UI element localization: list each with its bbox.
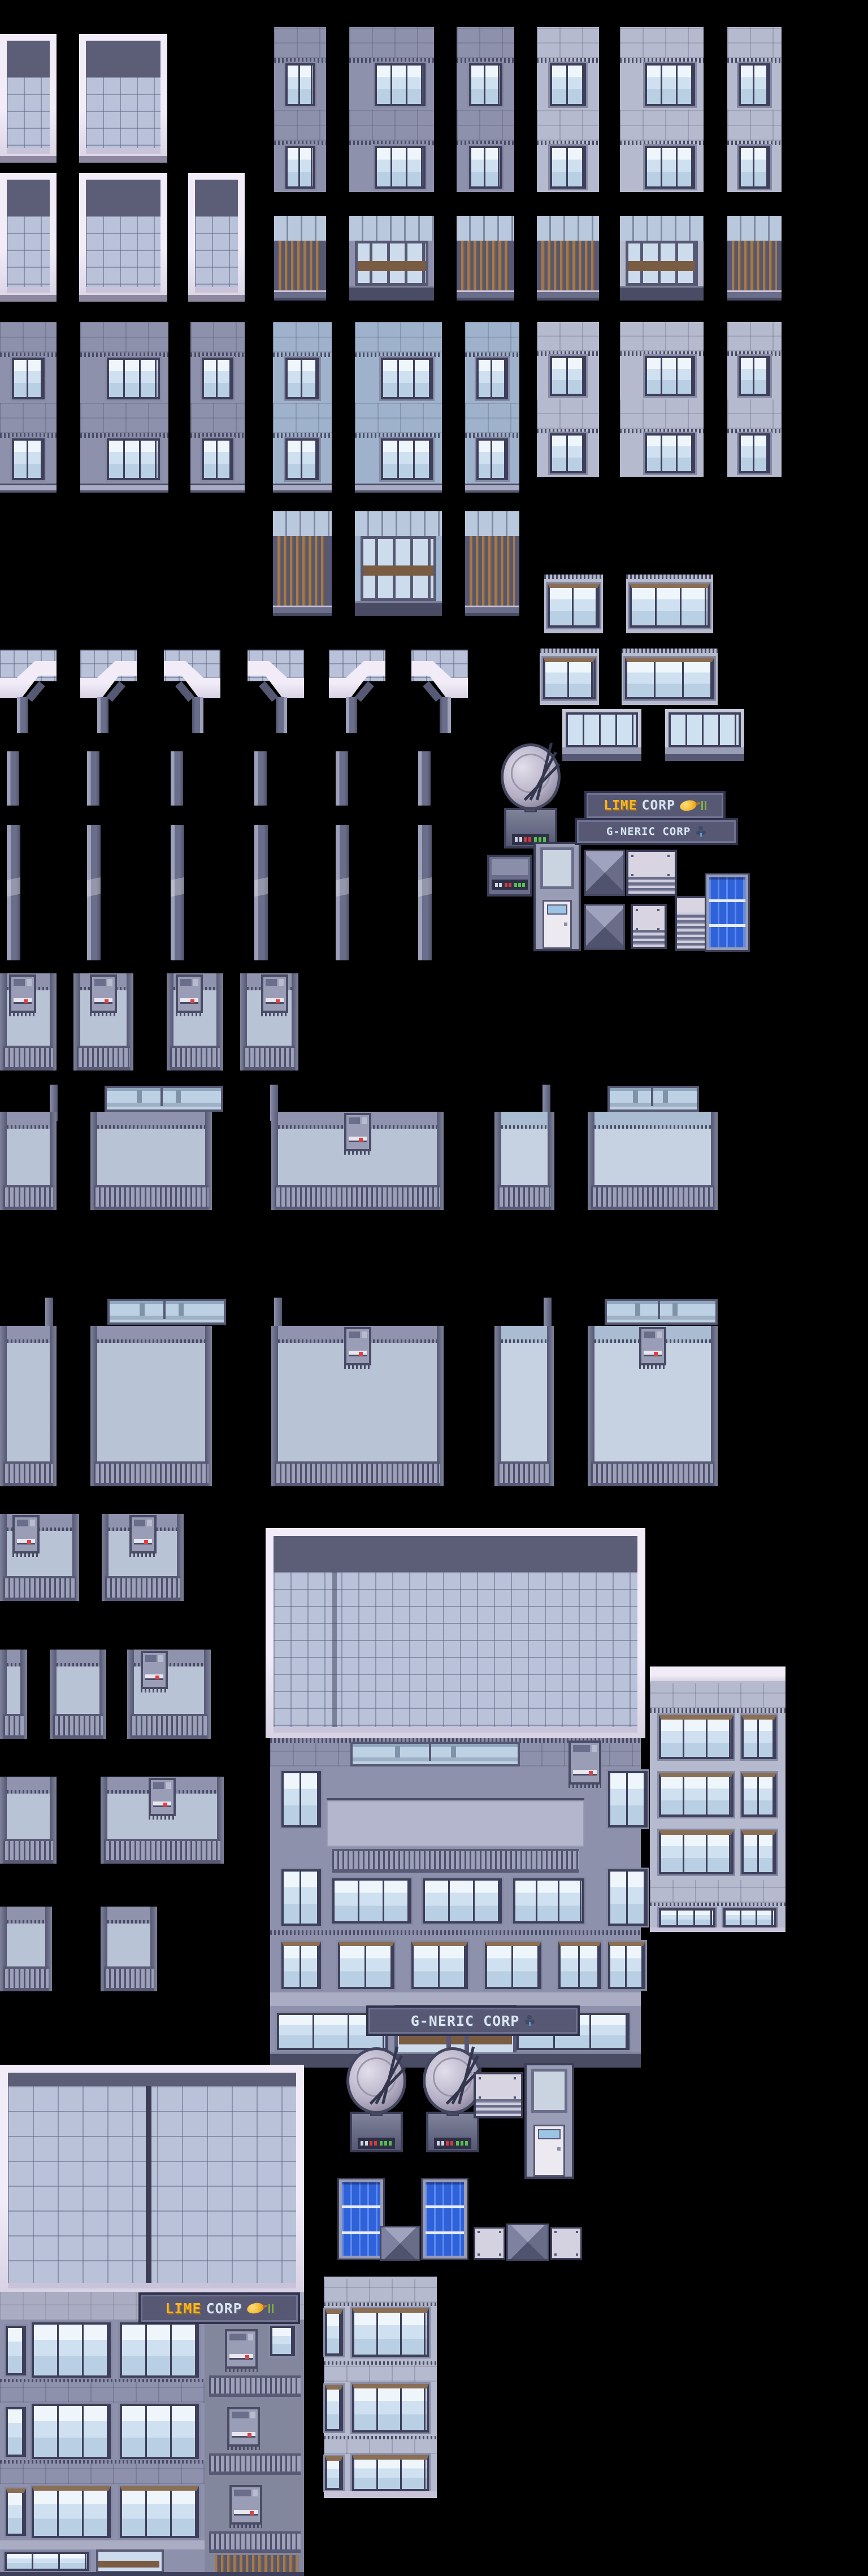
- sign-corp-word: CORP: [642, 798, 675, 813]
- pillar-tile: [336, 751, 348, 806]
- pillar-tile: [7, 825, 20, 960]
- facade-tower-tile: [0, 322, 57, 493]
- sprout-icon: [701, 801, 706, 810]
- satellite-dish: [342, 2045, 411, 2156]
- control-panel: [487, 855, 532, 897]
- glass-roof-tile: [188, 173, 245, 302]
- vent-box: [631, 904, 667, 949]
- roof-vent-pyramid: [380, 2226, 420, 2261]
- facade-tower-tile: [620, 322, 704, 477]
- rooftop-tile: [0, 1514, 79, 1605]
- skybridge-tile: [607, 1086, 699, 1112]
- lime-corp-sign: LIME CORP: [584, 791, 726, 820]
- rooftop-tile: [90, 1112, 212, 1215]
- facade-tower-tile: [457, 27, 514, 192]
- solar-panel: [423, 2179, 467, 2259]
- lemon-icon: [679, 799, 697, 812]
- generic-corp-building-sign: G-NERIC CORP: [366, 2005, 580, 2036]
- glass-roof-tile: [79, 34, 167, 163]
- window-tile: [622, 649, 718, 705]
- sign-generic-word: G-NERIC CORP: [606, 825, 691, 838]
- pillar-tile: [87, 751, 99, 806]
- pillar-tile: [7, 751, 19, 806]
- roof-corner-tile: [248, 650, 304, 733]
- louver-ground-tile: [457, 216, 514, 301]
- pillar-tile: [418, 751, 431, 806]
- trefoil-emblem-icon: [695, 826, 706, 837]
- trefoil-emblem-icon: [524, 2015, 535, 2026]
- window-tile: [540, 649, 599, 705]
- facade-tower-tile: [274, 27, 326, 192]
- skybridge-tile: [105, 1086, 223, 1112]
- rooftop-tile: [101, 1777, 224, 1868]
- roof-corner-tile: [80, 650, 137, 733]
- pillar-tile: [254, 825, 268, 960]
- facade-tower-tile: [727, 322, 782, 477]
- louver-stack: [675, 896, 708, 951]
- sign-lime-word: LIME: [165, 2300, 201, 2317]
- rooftop-tile: [0, 973, 57, 1075]
- louver-ground-tile: [465, 511, 519, 616]
- office-building: [266, 1528, 645, 2068]
- rooftop-tile: [127, 1650, 211, 1743]
- facade-tower-tile: [465, 322, 519, 493]
- rooftop-tile: [271, 1326, 444, 1491]
- roof-corner-tile: [164, 650, 220, 733]
- rooftop-tile: [0, 1650, 27, 1743]
- generic-corp-sign: G-NERIC CORP: [575, 818, 738, 845]
- facade-tower-tile: [273, 322, 332, 493]
- roof-vent-pyramid: [584, 850, 625, 896]
- facade-tower-tile: [537, 27, 599, 192]
- facade-tower-tile: [349, 27, 434, 192]
- apartment-building: [324, 2277, 437, 2498]
- rooftop-tile: [0, 1326, 57, 1491]
- roof-corner-tile: [0, 650, 57, 733]
- rooftop-tile: [271, 1112, 444, 1215]
- pillar-tile: [171, 751, 183, 806]
- satellite-dish: [496, 741, 565, 852]
- louver-ground-tile: [273, 511, 332, 616]
- elevator-unit: [524, 2063, 574, 2179]
- utility-box: [550, 2227, 582, 2260]
- louver-ground-tile: [274, 216, 326, 301]
- storefront-tile: [665, 709, 744, 761]
- louver-ground-tile: [727, 216, 782, 301]
- sign-lime-word: LIME: [604, 798, 637, 813]
- rooftop-tile: [90, 1326, 212, 1491]
- tileset-sheet: LIME CORP G-NERIC CORP G-NERIC CORP LIME…: [0, 0, 868, 2576]
- vent-box: [474, 2072, 523, 2118]
- rooftop-tile: [240, 973, 298, 1075]
- rooftop-tile: [588, 1112, 718, 1215]
- solar-panel: [339, 2179, 383, 2259]
- vent-box: [626, 850, 677, 896]
- rooftop-tile: [50, 1650, 106, 1743]
- pillar-tile: [254, 751, 267, 806]
- entrance-ground-tile: [620, 216, 704, 301]
- glass-roof-tile: [0, 173, 57, 302]
- side-building: [650, 1666, 785, 1932]
- sprout-icon: [268, 2304, 274, 2313]
- pillar-tile: [87, 825, 101, 960]
- skybridge-tile: [107, 1299, 226, 1325]
- lemon-icon: [246, 2301, 264, 2315]
- entrance-ground-tile: [355, 511, 442, 616]
- rooftop-tile: [0, 1112, 57, 1215]
- facade-tower-tile: [80, 322, 168, 493]
- rooftop-tile: [73, 973, 133, 1075]
- rooftop-tile: [0, 1907, 52, 1996]
- rooftop-tile: [167, 973, 223, 1075]
- utility-box: [474, 2227, 505, 2260]
- rooftop-tile: [102, 1514, 184, 1605]
- rooftop-tile: [0, 1777, 57, 1868]
- pillar-tile: [171, 825, 184, 960]
- rooftop-tile: [588, 1326, 718, 1491]
- storefront-tile: [562, 709, 641, 761]
- pillar-tile: [336, 825, 349, 960]
- window-tile: [544, 575, 603, 633]
- pillar-tile: [418, 825, 432, 960]
- glass-roof-tile: [0, 34, 57, 163]
- roof-vent-pyramid: [506, 2223, 549, 2261]
- facade-tower-tile: [190, 322, 245, 493]
- lime-corp-building-sign: LIME CORP: [138, 2292, 300, 2324]
- rooftop-tile: [101, 1907, 157, 1996]
- solar-panel: [706, 874, 748, 950]
- facade-tower-tile: [727, 27, 782, 192]
- facade-tower-tile: [537, 322, 599, 477]
- sign-corp-word: CORP: [206, 2300, 242, 2317]
- window-tile: [626, 575, 713, 633]
- roof-vent-pyramid: [584, 904, 625, 950]
- sign-generic-word: G-NERIC CORP: [411, 2013, 520, 2029]
- roof-corner-tile: [329, 650, 385, 733]
- entrance-ground-tile: [349, 216, 434, 301]
- elevator-unit: [533, 842, 581, 951]
- roof-corner-tile: [411, 650, 468, 733]
- rooftop-tile: [494, 1326, 554, 1491]
- facade-tower-tile: [355, 322, 442, 493]
- facade-tower-tile: [620, 27, 704, 192]
- rooftop-tile: [494, 1112, 554, 1215]
- glass-roof-tile: [79, 173, 167, 302]
- skybridge-tile: [605, 1299, 718, 1325]
- louver-ground-tile: [537, 216, 599, 301]
